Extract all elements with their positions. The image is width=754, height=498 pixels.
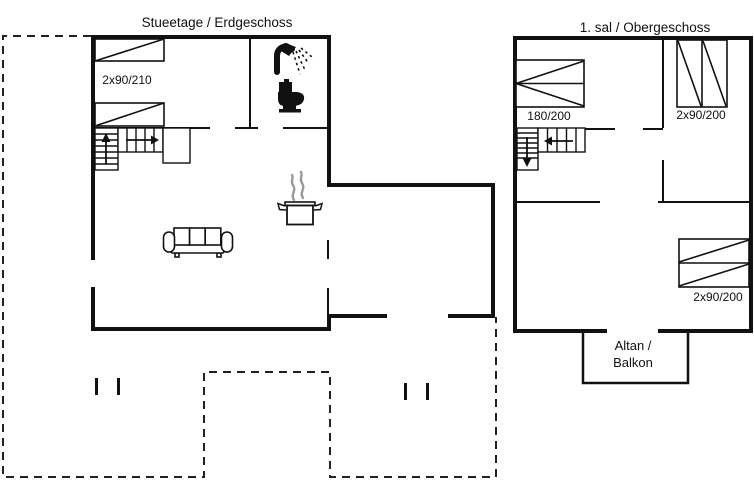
shower-icon — [277, 43, 312, 74]
upper-bunk-bed-size-label: 2x90/200 — [661, 109, 741, 123]
wall-segment — [235, 127, 258, 129]
balcony-label-line1: Altan / — [583, 339, 683, 354]
terrace-step-mark — [404, 383, 407, 400]
sofa-cushion — [190, 228, 206, 245]
wall-segment — [327, 183, 495, 187]
toilet-button — [284, 79, 289, 82]
sofa-icon — [164, 228, 233, 257]
wall-segment — [658, 201, 749, 203]
shower-spray — [293, 48, 312, 74]
upper-floor-bunk-beds — [677, 40, 727, 107]
sofa-armrest — [164, 232, 175, 252]
wall-segment — [643, 128, 663, 130]
sofa-cushion — [205, 228, 221, 245]
toilet-bowl — [278, 92, 304, 106]
wall-segment — [749, 36, 753, 333]
steam-icon — [292, 172, 303, 200]
stairs-flight — [538, 128, 585, 152]
floorplan-page: Stueetage / Erdgeschoss 1. sal / Oberges… — [0, 0, 754, 498]
toilet-base — [279, 109, 301, 113]
upper-floor-title: 1. sal / Obergeschoss — [545, 20, 745, 36]
ground-floor-title: Stueetage / Erdgeschoss — [117, 15, 317, 31]
wall-segment — [283, 127, 327, 129]
pot-body — [287, 206, 313, 225]
wall-segment — [327, 240, 329, 259]
wall-segment — [448, 314, 495, 318]
terrace-step-mark — [117, 378, 120, 395]
wall-segment — [327, 288, 329, 314]
wall-segment — [249, 39, 251, 127]
stairs-landing — [163, 128, 190, 163]
ground-floor-stairs — [95, 128, 190, 170]
sofa-cushion — [174, 228, 190, 245]
terrace-step-mark — [426, 383, 429, 400]
wall-segment — [662, 160, 664, 203]
upper-floor-double-bed — [516, 60, 584, 107]
wall-segment — [491, 183, 495, 318]
upper-floor-stairs — [517, 128, 585, 170]
terrace-step-mark — [95, 378, 98, 395]
sofa-armrest — [222, 232, 233, 252]
wall-segment — [327, 314, 387, 318]
toilet-icon — [278, 79, 304, 113]
wall-segment — [327, 314, 331, 331]
wall-segment — [517, 201, 600, 203]
upper-floor-right-beds — [679, 239, 749, 287]
balcony-label-line2: Balkon — [583, 356, 683, 371]
wall-segment — [91, 287, 95, 331]
toilet-tank — [279, 82, 292, 93]
wall-segment — [658, 329, 753, 333]
ground-bed-size-label: 2x90/210 — [87, 74, 167, 88]
wall-segment — [513, 329, 607, 333]
wall-segment — [91, 327, 331, 331]
upper-right-bed-size-label: 2x90/200 — [678, 291, 754, 305]
wall-segment — [327, 35, 331, 187]
upper-double-bed-size-label: 180/200 — [509, 110, 589, 124]
cooking-pot-icon — [278, 172, 322, 225]
